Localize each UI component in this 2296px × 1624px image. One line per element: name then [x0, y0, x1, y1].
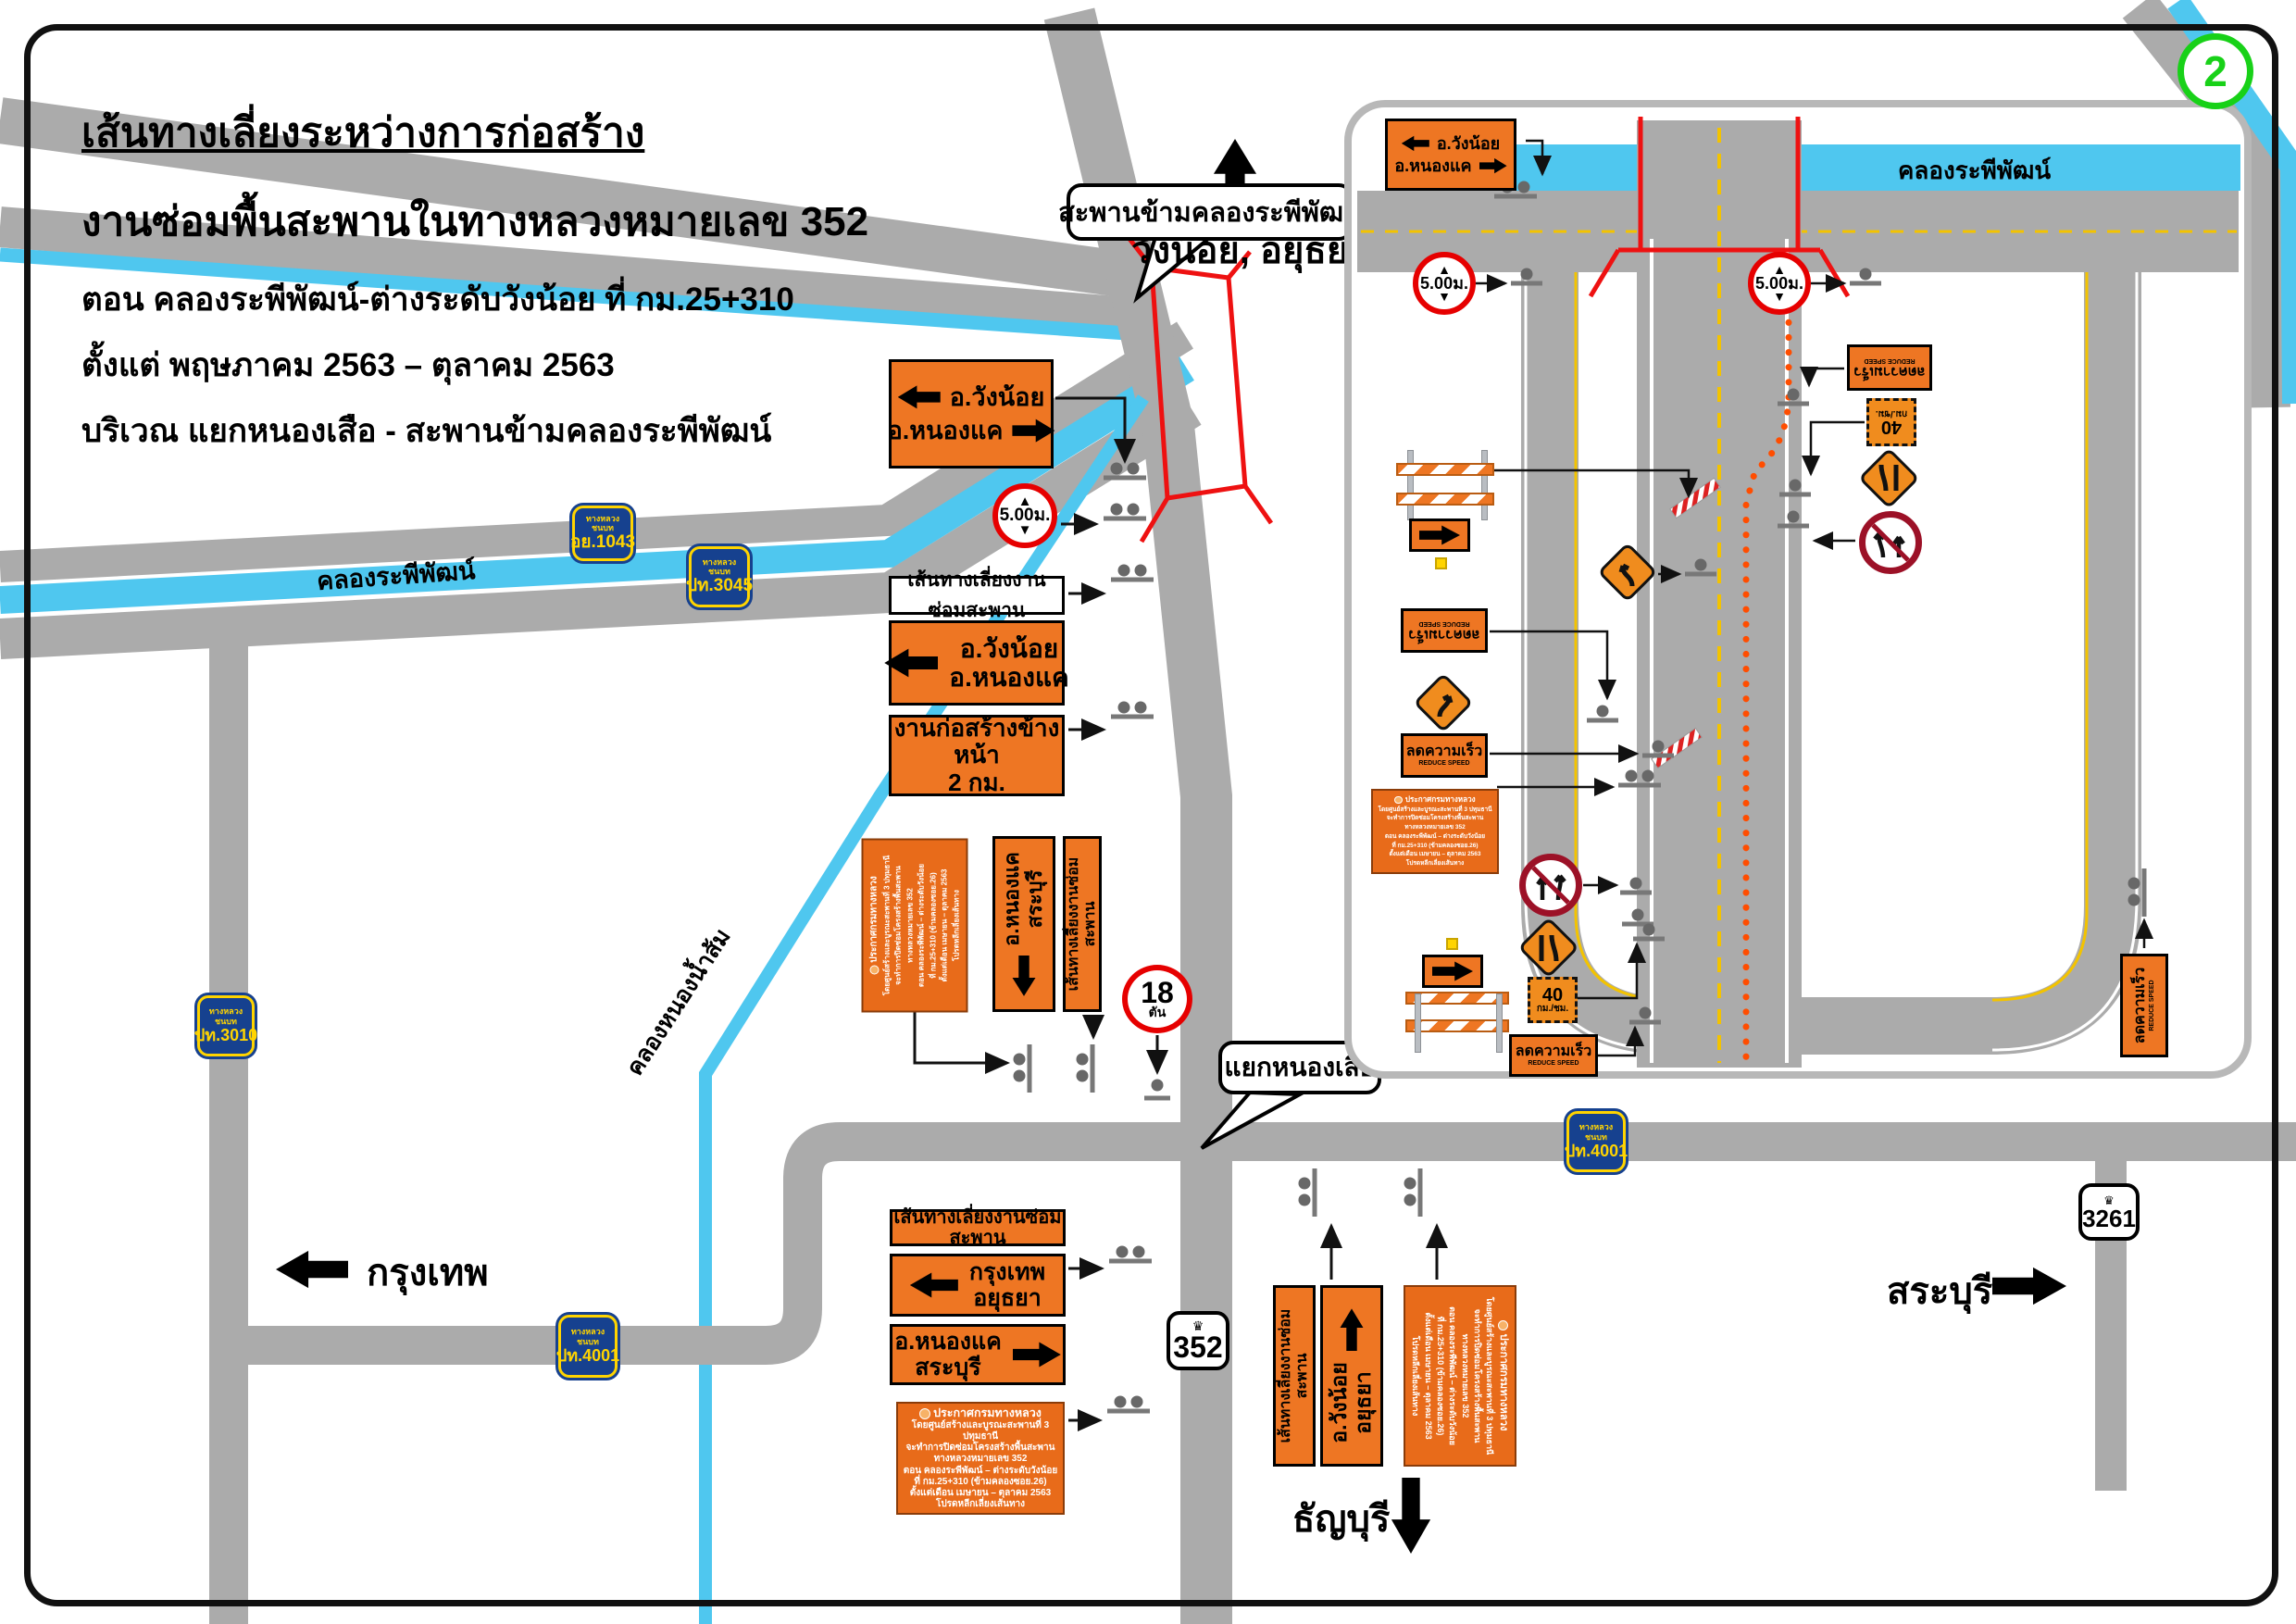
badge-caption: ทางหลวงชนบท: [1569, 1122, 1623, 1142]
sign-text: กม./ชม.: [1537, 1005, 1568, 1014]
route-badge-pt4001-east: ทางหลวงชนบท ปท.4001: [1566, 1111, 1626, 1172]
inset-height-limit-right: ▲5.00ม.▼: [1748, 252, 1811, 315]
lane-narrows-icon: [1519, 918, 1578, 978]
badge-number: ปท.3010: [194, 1026, 257, 1045]
doh-logo-icon: [869, 966, 879, 975]
keep-right-arrow-icon: [1432, 961, 1473, 981]
sign-wangnoi-ayutthaya-rotated: อ.วังน้อย อยุธยา: [1320, 1285, 1383, 1467]
sign-text: ตัน: [1149, 1006, 1167, 1018]
announcement-line: โปรดหลีกเลี่ยงเส้นทาง: [952, 843, 960, 1008]
sign-text: ลดความเร็ว: [1406, 743, 1482, 760]
badge-number: ปท.4001: [556, 1346, 619, 1366]
inset-sign-wangnoi-nongkhae: อ.วังน้อย อ.หนองแค: [1385, 119, 1516, 191]
sign-text: 40: [1542, 986, 1563, 1005]
sign-nongkhae-saraburi-rotated: อ.หนองแค สระบุรี: [992, 836, 1055, 1012]
sign-detour-route-south: เส้นทางเลี่ยงงานซ่อมสะพาน: [890, 1209, 1066, 1246]
doh-logo-icon: [919, 1408, 930, 1419]
no-lane-change-icon: [1526, 860, 1576, 910]
shield-number: 352: [1173, 1332, 1222, 1362]
sign-text: 40: [1881, 418, 1902, 436]
announcement-line: โดยศูนย์สร้างและบูรณะสะพานที่ 3 ปทุมธานี: [882, 843, 891, 1008]
sign-text: เส้นทางเลี่ยงงานซ่อมสะพาน: [892, 1207, 1063, 1249]
title-line3: ตอน คลองระพีพัฒน์-ต่างระดับวังน้อย ที่ ก…: [81, 274, 859, 325]
announcement-line: โปรดหลีกเลี่ยงเส้นทาง: [1376, 860, 1494, 868]
doh-logo-icon: [1498, 1320, 1508, 1330]
sign-nongkhae-saraburi-right: อ.หนองแค สระบุรี: [890, 1324, 1066, 1385]
sign-text: 2 กม.: [948, 769, 1005, 796]
announcement-line: ที่ กม.25+310 (ข้ามคลองซอย.26): [929, 843, 937, 1008]
inset-canal-label: คลองระพีพัฒน์: [1898, 152, 2051, 190]
bangkok-label: กรุงเทพ: [367, 1243, 489, 1302]
announcement-line: ที่ กม.25+310 (ข้ามคลองซอย.26): [901, 1477, 1060, 1488]
sign-text: REDUCE SPEED: [1864, 356, 1915, 364]
announcement-line: ประกาศกรมทางหลวง: [869, 876, 880, 962]
title-line4: ตั้งแต่ พฤษภาคม 2563 – ตุลาคม 2563: [81, 340, 859, 391]
announcement-line: ตั้งแต่เดือน เมษายน – ตุลาคม 2563: [1376, 851, 1494, 858]
page-title: เส้นทางเลี่ยงระหว่างการก่อสร้าง: [81, 100, 859, 165]
announcement-sign-rotated-east: ประกาศกรมทางหลวง โดยศูนย์สร้างและบูรณะสะ…: [1404, 1285, 1516, 1467]
warning-lamp-icon: [1446, 938, 1458, 950]
route-shield-352: ♛ 352: [1167, 1311, 1229, 1370]
sign-text: เส้นทางเลี่ยงงานซ่อมสะพาน: [1066, 839, 1099, 1009]
inset-sign-reduce-speed-rotated: ลดความเร็ว REDUCE SPEED: [2120, 954, 2168, 1057]
badge-number: ปท.3045: [686, 576, 753, 596]
inset-sign-reduce-speed-oncoming: ลดความเร็ว REDUCE SPEED: [1847, 344, 1932, 391]
badge-number: อย.1043: [570, 532, 635, 553]
inset-graphics: [1344, 100, 2252, 1079]
sign-weight-limit-18t: 18 ตัน: [1122, 965, 1192, 1033]
sign-text: อยุธยา: [969, 1285, 1045, 1311]
sign-text: REDUCE SPEED: [1418, 619, 1469, 627]
sign-text: สระบุรี: [1024, 852, 1047, 946]
inset-sign-curve-right: [1415, 674, 1472, 731]
sign-text: เส้นทางเลี่ยงงานซ่อมสะพาน: [892, 565, 1062, 626]
sign-text: อ.หนองแค: [1394, 156, 1471, 175]
badge-caption: ทางหลวงชนบท: [692, 557, 747, 577]
announcement-line: ทางหลวงหมายเลข 352: [1460, 1290, 1470, 1462]
inset-sign-reduce-speed-bottom: ลดความเร็ว REDUCE SPEED: [1509, 1034, 1598, 1077]
announcement-line: โดยศูนย์สร้างและบูรณะสะพานที่ 3 ปทุมธานี: [1376, 806, 1494, 814]
sign-detour-rotated-west: เส้นทางเลี่ยงงานซ่อมสะพาน: [1063, 836, 1102, 1012]
curve-right-icon: [1415, 674, 1472, 731]
sign-wangnoi-nongkhae-twoway: อ.วังน้อย อ.หนองแค: [889, 359, 1054, 468]
sign-text: อ.หนองแค: [949, 663, 1068, 692]
announcement-line: ตอน คลองระพีพัฒน์ – ต่างระดับวังน้อย: [917, 843, 926, 1008]
page-number: 2: [2203, 46, 2227, 96]
announcement-line: ประกาศกรมทางหลวง: [1405, 795, 1476, 805]
inset-sign-keep-right: [1409, 518, 1470, 552]
sign-height-limit: ▲ 5.00ม. ▼: [992, 483, 1057, 548]
sign-detour-route: เส้นทางเลี่ยงงานซ่อมสะพาน: [889, 576, 1065, 615]
route-shield-3261: ♛ 3261: [2078, 1183, 2140, 1241]
announcement-line: โดยศูนย์สร้างและบูรณะสะพานที่ 3 ปทุมธานี: [1485, 1290, 1495, 1462]
sign-text: อ.วังน้อย: [950, 383, 1045, 411]
sign-text: REDUCE SPEED: [2149, 980, 2156, 1031]
no-overtaking-icon: [1865, 518, 1915, 568]
announcement-line: ตอน คลองระพีพัฒน์ – ต่างระดับวังน้อย: [1448, 1290, 1458, 1462]
bridge-callout: สะพานข้ามคลองระพีพัฒน์: [1067, 183, 1354, 241]
inset-sign-40kmh-oncoming: 40 กม./ชม.: [1866, 398, 1916, 446]
warning-lamp-icon: [1435, 557, 1447, 569]
badge-caption: ทางหลวงชนบท: [200, 1006, 252, 1026]
announcement-line: ตั้งแต่เดือน เมษายน – ตุลาคม 2563: [901, 1488, 1060, 1499]
shield-number: 3261: [2082, 1206, 2136, 1230]
sign-text: 18: [1141, 980, 1174, 1006]
sign-text: ลดความเร็ว: [2132, 968, 2149, 1043]
title-line5: บริเวณ แยกหนองเสือ - สะพานข้ามคลองระพีพั…: [81, 406, 859, 456]
sign-text: 5.00ม.: [1000, 507, 1051, 523]
sign-wangnoi-nongkhae-left: อ.วังน้อย อ.หนองแค: [889, 620, 1065, 706]
title-block: เส้นทางเลี่ยงระหว่างการก่อสร้าง งานซ่อมพ…: [81, 100, 859, 456]
route-badge-ay1043: ทางหลวงชนบท อย.1043: [572, 506, 633, 561]
sign-text: ลดความเร็ว: [1408, 627, 1479, 643]
announcement-line: ทางหลวงหมายเลข 352: [1376, 824, 1494, 831]
route-badge-pt3045: ทางหลวงชนบท ปท.3045: [689, 546, 750, 607]
route-badge-pt3010: ทางหลวงชนบท ปท.3010: [197, 995, 255, 1056]
inset-height-limit-left: ▲5.00ม.▼: [1413, 252, 1476, 315]
announcement-line: ตอน คลองระพีพัฒน์ – ต่างระดับวังน้อย: [1376, 833, 1494, 841]
badge-caption: ทางหลวงชนบท: [575, 514, 630, 533]
sign-text: กรุงเทพ: [969, 1259, 1045, 1285]
inset-sign-no-overtaking: [1859, 511, 1922, 574]
sign-text: REDUCE SPEED: [1418, 760, 1469, 768]
announcement-line: โปรดหลีกเลี่ยงเส้นทาง: [901, 1499, 1060, 1510]
announcement-sign-rotated-west: ประกาศกรมทางหลวง โดยศูนย์สร้างและบูรณะสะ…: [862, 839, 968, 1013]
announcement-line: ทางหลวงหมายเลข 352: [901, 1454, 1060, 1465]
sign-text: ลดความเร็ว: [1853, 364, 1925, 380]
curve-left-icon: [1599, 543, 1656, 601]
announcement-line: โดยศูนย์สร้างและบูรณะสะพานที่ 3 ปทุมธานี: [901, 1420, 1060, 1443]
badge-number: ปท.4001: [1565, 1142, 1628, 1161]
sign-text: กม./ชม.: [1876, 408, 1907, 418]
bridge-callout-label: สะพานข้ามคลองระพีพัฒน์: [1058, 191, 1362, 233]
announcement-line: ประกาศกรมทางหลวง: [933, 1406, 1042, 1420]
sign-detour-rotated-south: เส้นทางเลี่ยงงานซ่อมสะพาน: [1273, 1285, 1316, 1467]
announcement-line: จะทำการปิดซ่อมโครงสร้างพื้นสะพาน: [1376, 815, 1494, 822]
thanyaburi-label: ธัญบุรี: [1292, 1489, 1390, 1548]
workzone-inset-panel: คลองระพีพัฒน์ อ.วังน้อย อ.หนองแค ▲5.00ม.…: [1344, 100, 2252, 1079]
sign-text: ลดความเร็ว: [1516, 1043, 1591, 1060]
sign-text: อยุธยา: [1352, 1362, 1376, 1443]
sign-text: REDUCE SPEED: [1528, 1060, 1578, 1068]
inset-sign-reduce-speed-left: ลดความเร็ว REDUCE SPEED: [1401, 733, 1488, 778]
sign-text: อ.วังน้อย: [949, 634, 1068, 663]
announcement-line: ที่ กม.25+310 (ข้ามคลองซอย.26): [1435, 1290, 1445, 1462]
sign-text: งานก่อสร้างข้างหน้า: [892, 715, 1062, 768]
announcement-line: ที่ กม.25+310 (ข้ามคลองซอย.26): [1376, 843, 1494, 850]
inset-sign-reduce-speed-oncoming2: ลดความเร็ว REDUCE SPEED: [1401, 608, 1488, 653]
detour-map-page: เส้นทางเลี่ยงระหว่างการก่อสร้าง งานซ่อมพ…: [0, 0, 2296, 1624]
announcement-line: ตั้งแต่เดือน เมษายน – ตุลาคม 2563: [941, 843, 949, 1008]
sign-text: อ.วังน้อย: [1437, 134, 1500, 153]
page-number-badge: 2: [2177, 33, 2253, 109]
announcement-line: จะทำการปิดซ่อมโครงสร้างพื้นสะพาน: [901, 1443, 1060, 1454]
sign-text: อ.วังน้อย: [1328, 1362, 1352, 1443]
sign-text: เส้นทางเลี่ยงงานซ่อมสะพาน: [1278, 1288, 1311, 1464]
sign-construction-ahead: งานก่อสร้างข้างหน้า 2 กม.: [889, 715, 1065, 796]
inset-sign-lane-narrows: [1519, 918, 1578, 978]
announcement-line: จะทำการปิดซ่อมโครงสร้างพื้นสะพาน: [1472, 1290, 1482, 1462]
inset-sign-40kmh: 40 กม./ชม.: [1528, 977, 1578, 1023]
inset-sign-lane-narrows-oncoming: [1859, 448, 1918, 507]
inset-sign-no-lane-change: [1519, 854, 1582, 917]
announcement-line: ทางหลวงหมายเลข 352: [905, 843, 914, 1008]
announcement-sign-south: ประกาศกรมทางหลวง โดยศูนย์สร้างและบูรณะสะ…: [896, 1402, 1065, 1515]
saraburi-label: สระบุรี: [1887, 1261, 1992, 1320]
announcement-line: ตอน คลองระพีพัฒน์ – ต่างระดับวังน้อย: [901, 1466, 1060, 1477]
sign-text: สระบุรี: [894, 1355, 1002, 1380]
inset-sign-curve-left-mid: [1599, 543, 1656, 601]
announcement-line: จะทำการปิดซ่อมโครงสร้างพื้นสะพาน: [894, 843, 903, 1008]
announcement-line: ประกาศกรมทางหลวง: [1497, 1333, 1509, 1430]
announcement-line: โปรดหลีกเลี่ยงเส้นทาง: [1411, 1290, 1421, 1462]
doh-logo-icon: [1394, 796, 1403, 805]
lane-narrows-icon: [1859, 448, 1918, 507]
inset-announcement-sign: ประกาศกรมทางหลวง โดยศูนย์สร้างและบูรณะสะ…: [1371, 789, 1499, 874]
sign-text: อ.หนองแค: [888, 417, 1004, 444]
badge-caption: ทางหลวงชนบท: [561, 1327, 615, 1346]
inset-sign-keep-right2: [1422, 955, 1483, 988]
sign-text: อ.หนองแค: [1001, 852, 1024, 946]
announcement-line: ตั้งแต่เดือน เมษายน – ตุลาคม 2563: [1423, 1290, 1433, 1462]
keep-right-arrow-icon: [1419, 525, 1460, 545]
inset-canal: [1496, 144, 2240, 191]
sign-text: อ.หนองแค: [894, 1329, 1002, 1355]
sign-bangkok-ayutthaya-left: กรุงเทพ อยุธยา: [890, 1254, 1066, 1317]
route-badge-pt4001-west: ทางหลวงชนบท ปท.4001: [558, 1315, 618, 1378]
title-line2: งานซ่อมพื้นสะพานในทางหลวงหมายเลข 352: [81, 189, 859, 254]
